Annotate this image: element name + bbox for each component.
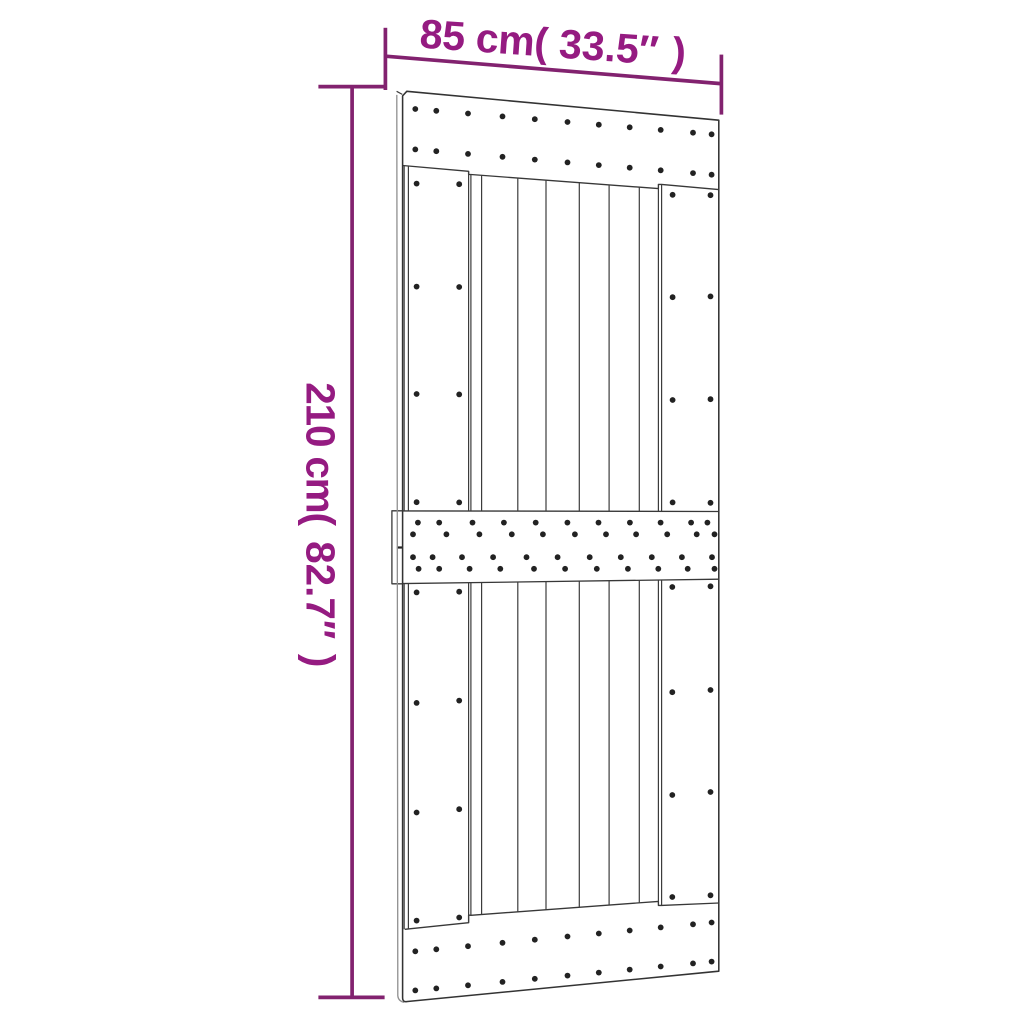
svg-text:33.5″: 33.5″: [558, 21, 660, 74]
svg-text:): ): [297, 654, 343, 668]
svg-text:85 cm(: 85 cm(: [418, 11, 550, 66]
svg-text:210 cm(: 210 cm(: [297, 382, 343, 526]
svg-text:82.7″: 82.7″: [297, 541, 343, 639]
